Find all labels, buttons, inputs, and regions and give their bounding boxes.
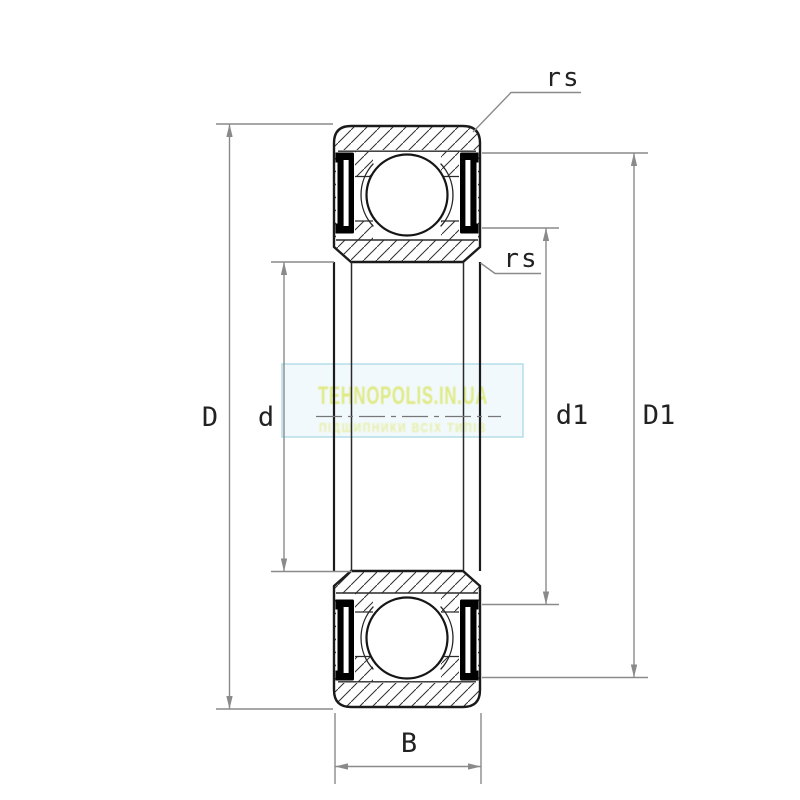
label-corner-radius-outer: rs (545, 63, 580, 93)
dim-label-outer-diameter: D (202, 402, 218, 433)
watermark-title: TEHNOPOLIS.IN.UA (318, 382, 488, 410)
leader-line (473, 93, 581, 133)
bearing-drawing-page: TEHNOPOLIS.IN.UA ПІДШИПНИКИ ВСІХ ТИПІВ D… (0, 0, 800, 800)
dimension-B: B (335, 713, 481, 784)
dim-label-width: B (401, 728, 417, 759)
callout-rs-outer: rs (473, 63, 581, 132)
bearing-diagram-svg: TEHNOPOLIS.IN.UA ПІДШИПНИКИ ВСІХ ТИПІВ D… (0, 0, 800, 800)
label-corner-radius-inner: rs (503, 244, 538, 274)
dim-label-bore-diameter: d (258, 402, 274, 433)
watermark-subtitle: ПІДШИПНИКИ ВСІХ ТИПІВ (319, 420, 487, 435)
watermark: TEHNOPOLIS.IN.UA ПІДШИПНИКИ ВСІХ ТИПІВ (282, 364, 523, 437)
dim-label-inner-shoulder: d1 (556, 400, 589, 431)
dim-label-outer-shoulder: D1 (643, 400, 676, 431)
callout-rs-inner: rs (481, 244, 542, 274)
